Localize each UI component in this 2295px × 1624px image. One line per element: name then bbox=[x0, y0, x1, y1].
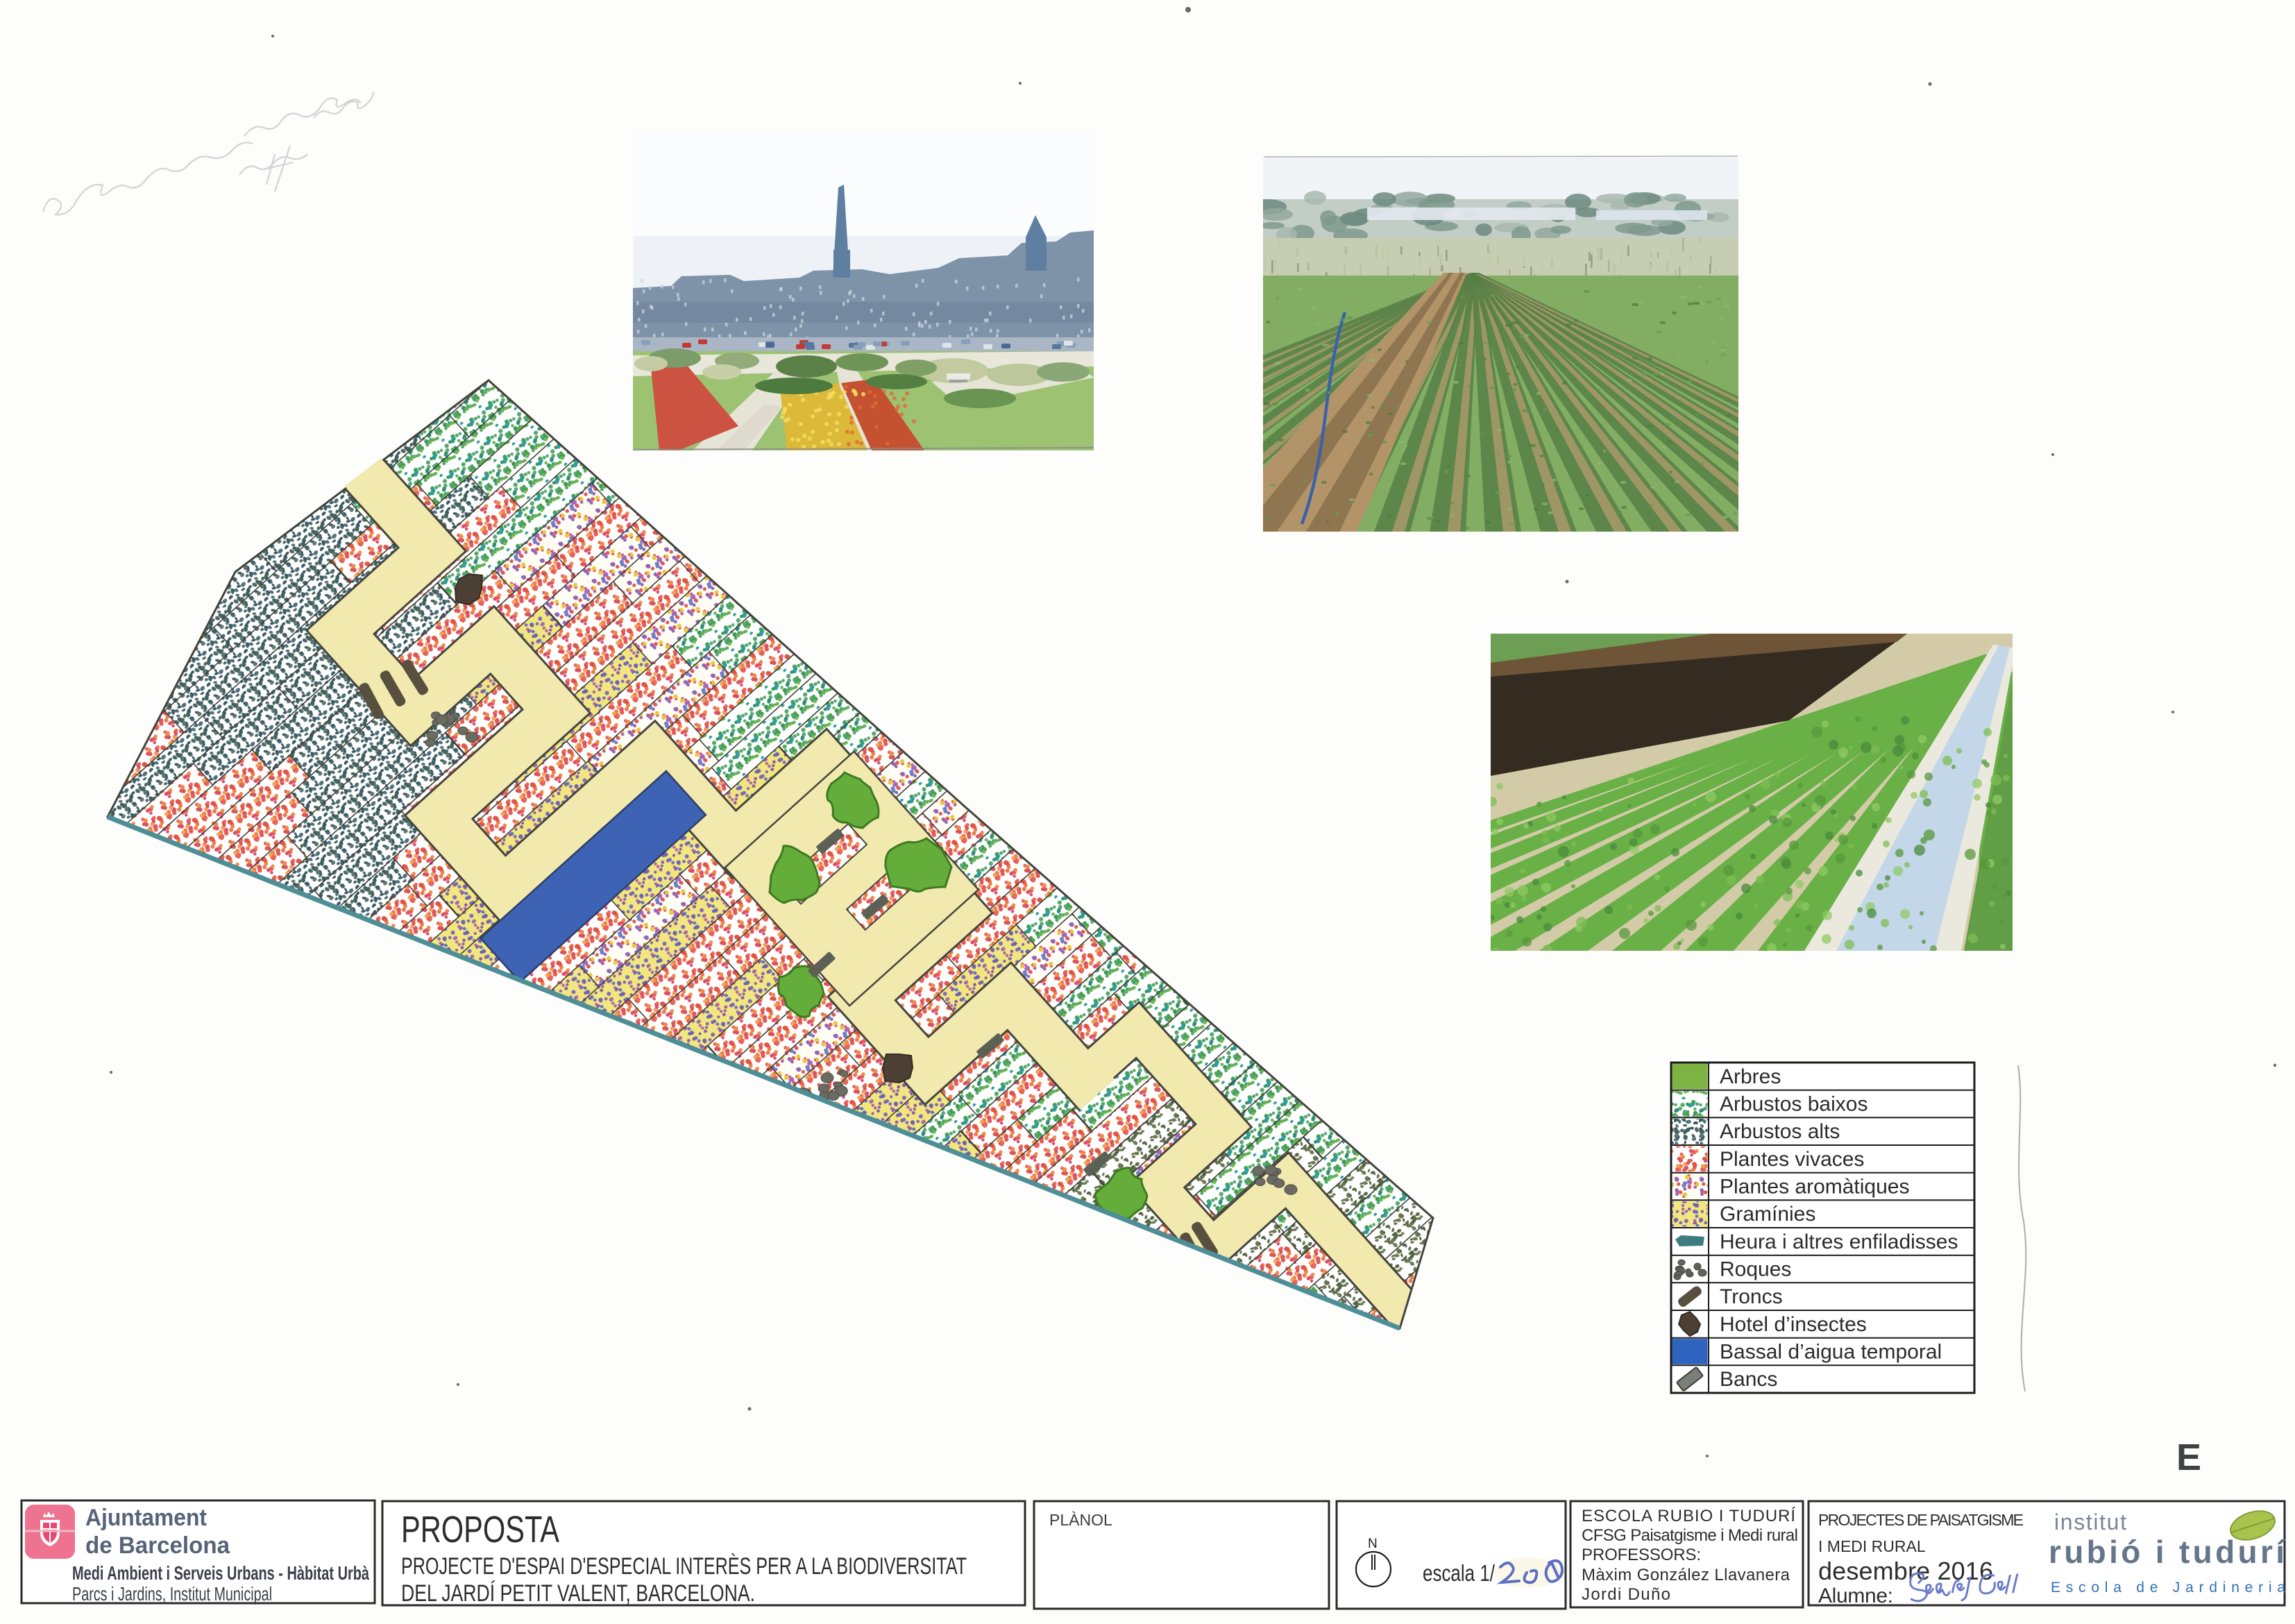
svg-text:institut: institut bbox=[2054, 1509, 2126, 1534]
svg-text:Plantes aromàtiques: Plantes aromàtiques bbox=[1720, 1176, 1910, 1199]
svg-text:Arbres: Arbres bbox=[1720, 1065, 1781, 1088]
svg-text:de Barcelona: de Barcelona bbox=[85, 1532, 230, 1559]
svg-text:DEL JARDÍ PETIT VALENT, BARCEL: DEL JARDÍ PETIT VALENT, BARCELONA. bbox=[401, 1580, 755, 1607]
svg-text:Medi Ambient i Serveis Urbans: Medi Ambient i Serveis Urbans - Hàbitat … bbox=[72, 1562, 369, 1584]
svg-text:Hotel d’insectes: Hotel d’insectes bbox=[1720, 1313, 1867, 1336]
svg-text:PROJECTES DE PAISATGISME: PROJECTES DE PAISATGISME bbox=[1818, 1511, 2024, 1529]
svg-text:Arbustos baixos: Arbustos baixos bbox=[1720, 1093, 1868, 1116]
svg-text:PLÀNOL: PLÀNOL bbox=[1049, 1511, 1112, 1529]
svg-text:Gramínies: Gramínies bbox=[1720, 1203, 1815, 1226]
svg-text:Màxim González Llavanera: Màxim González Llavanera bbox=[1582, 1566, 1790, 1584]
svg-text:Troncs: Troncs bbox=[1720, 1285, 1783, 1308]
svg-text:Arbustos alts: Arbustos alts bbox=[1720, 1120, 1840, 1143]
svg-text:Heura i altres enfiladisses: Heura i altres enfiladisses bbox=[1720, 1230, 1958, 1253]
svg-text:Ajuntament: Ajuntament bbox=[85, 1505, 207, 1531]
svg-text:Bassal d’aigua temporal: Bassal d’aigua temporal bbox=[1720, 1341, 1942, 1364]
svg-text:N: N bbox=[1368, 1537, 1378, 1551]
svg-text:PROPOSTA: PROPOSTA bbox=[401, 1509, 559, 1550]
svg-text:I MEDI RURAL: I MEDI RURAL bbox=[1818, 1537, 1926, 1555]
svg-text:desembre 2016: desembre 2016 bbox=[1818, 1557, 1993, 1585]
svg-text:Bancs: Bancs bbox=[1720, 1368, 1777, 1391]
svg-text:Roques: Roques bbox=[1720, 1258, 1791, 1281]
svg-text:PROJECTE D'ESPAI D'ESPECIAL IN: PROJECTE D'ESPAI D'ESPECIAL INTERÈS PER … bbox=[401, 1553, 967, 1580]
svg-text:Jordi Duño: Jordi Duño bbox=[1582, 1585, 1670, 1604]
svg-text:ESCOLA RUBIO I TUDURÍ: ESCOLA RUBIO I TUDURÍ bbox=[1582, 1507, 1795, 1525]
svg-text:Parcs i Jardins, Institut Muni: Parcs i Jardins, Institut Municipal bbox=[72, 1583, 272, 1605]
svg-text:Alumne:: Alumne: bbox=[1818, 1584, 1893, 1607]
svg-text:Plantes vivaces: Plantes vivaces bbox=[1720, 1148, 1864, 1171]
svg-text:E: E bbox=[2176, 1437, 2201, 1478]
svg-text:CFSG Paisatgisme i Medi rural: CFSG Paisatgisme i Medi rural bbox=[1582, 1526, 1798, 1545]
svg-text:PROFESSORS:: PROFESSORS: bbox=[1582, 1546, 1701, 1564]
svg-text:escala 1/: escala 1/ bbox=[1423, 1560, 1496, 1586]
